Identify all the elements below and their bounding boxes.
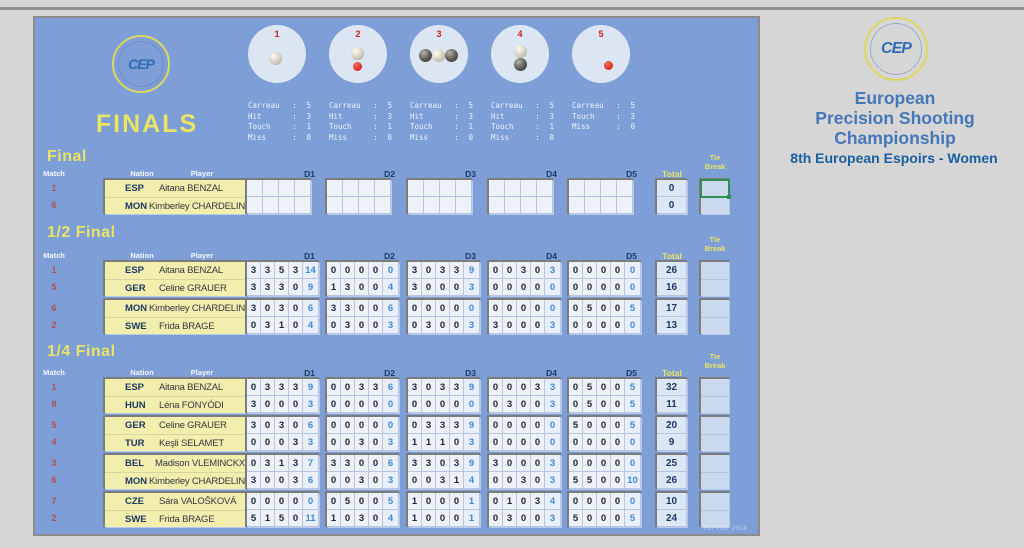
score-cell[interactable]: 0: [436, 396, 450, 413]
score-cell[interactable]: 0: [355, 455, 369, 472]
score-cell[interactable]: 3: [422, 455, 436, 472]
score-cell[interactable]: 0: [503, 417, 517, 434]
score-cell[interactable]: 0: [531, 279, 545, 296]
score-cell[interactable]: 0: [261, 300, 275, 317]
score-cell[interactable]: 1: [408, 434, 422, 451]
score-cell[interactable]: 0: [531, 455, 545, 472]
end-sum-cell[interactable]: 0: [464, 300, 480, 317]
score-cell[interactable]: 0: [355, 493, 369, 510]
score-cell[interactable]: 3: [355, 434, 369, 451]
end-sum-cell[interactable]: 11: [303, 510, 319, 527]
score-cell[interactable]: 3: [275, 379, 289, 396]
score-cell[interactable]: 5: [583, 396, 597, 413]
score-cell[interactable]: 3: [341, 279, 355, 296]
end-sum-cell[interactable]: 6: [303, 472, 319, 489]
score-cell[interactable]: 0: [369, 317, 383, 334]
score-cell[interactable]: 0: [531, 317, 545, 334]
score-cell[interactable]: 0: [597, 379, 611, 396]
score-cell[interactable]: 0: [503, 300, 517, 317]
score-cell[interactable]: 0: [489, 472, 503, 489]
score-cell[interactable]: 0: [569, 262, 583, 279]
score-cell[interactable]: 0: [327, 434, 341, 451]
score-cell[interactable]: 0: [489, 510, 503, 527]
score-cell[interactable]: 5: [569, 510, 583, 527]
score-cell[interactable]: 3: [369, 379, 383, 396]
score-cell[interactable]: [247, 197, 263, 214]
score-cell[interactable]: 0: [422, 262, 436, 279]
score-cell[interactable]: 0: [436, 510, 450, 527]
score-cell[interactable]: 0: [369, 493, 383, 510]
score-cell[interactable]: 0: [327, 317, 341, 334]
score-cell[interactable]: 0: [436, 493, 450, 510]
score-cell[interactable]: 0: [503, 279, 517, 296]
score-cell[interactable]: 0: [408, 317, 422, 334]
score-cell[interactable]: 5: [275, 510, 289, 527]
total-cell[interactable]: 10: [657, 493, 687, 510]
score-cell[interactable]: 0: [597, 493, 611, 510]
score-cell[interactable]: 0: [611, 434, 625, 451]
end-sum-cell[interactable]: 3: [383, 317, 399, 334]
score-cell[interactable]: [327, 197, 343, 214]
player-row[interactable]: TURKeşli SELAMET: [105, 434, 245, 451]
score-cell[interactable]: 0: [327, 493, 341, 510]
player-row[interactable]: CZESára VALOŠKOVÁ: [105, 493, 245, 510]
score-cell[interactable]: 3: [247, 417, 261, 434]
score-cell[interactable]: [521, 197, 537, 214]
score-cell[interactable]: [424, 197, 440, 214]
score-cell[interactable]: 0: [247, 434, 261, 451]
score-cell[interactable]: 5: [341, 493, 355, 510]
end-sum-cell[interactable]: 4: [303, 317, 319, 334]
score-cell[interactable]: 0: [261, 417, 275, 434]
end-sum-cell[interactable]: 9: [303, 279, 319, 296]
total-cell[interactable]: 17: [657, 300, 687, 317]
score-cell[interactable]: 0: [503, 317, 517, 334]
score-cell[interactable]: 3: [517, 472, 531, 489]
score-cell[interactable]: 3: [261, 379, 275, 396]
end-sum-cell[interactable]: 0: [625, 279, 641, 296]
end-sum-cell[interactable]: 3: [383, 434, 399, 451]
score-cell[interactable]: 0: [261, 493, 275, 510]
tie-break-cell[interactable]: [701, 317, 729, 334]
score-cell[interactable]: 0: [569, 279, 583, 296]
score-cell[interactable]: 0: [369, 455, 383, 472]
tie-break-cell[interactable]: [701, 262, 729, 279]
score-cell[interactable]: 0: [436, 279, 450, 296]
end-sum-cell[interactable]: 0: [383, 396, 399, 413]
score-cell[interactable]: 0: [569, 493, 583, 510]
score-cell[interactable]: 3: [247, 472, 261, 489]
score-cell[interactable]: 5: [583, 379, 597, 396]
score-cell[interactable]: 0: [261, 396, 275, 413]
score-cell[interactable]: 1: [327, 510, 341, 527]
score-cell[interactable]: 0: [327, 262, 341, 279]
score-cell[interactable]: 5: [247, 510, 261, 527]
score-cell[interactable]: 0: [611, 493, 625, 510]
score-cell[interactable]: 0: [341, 434, 355, 451]
end-sum-cell[interactable]: 0: [625, 493, 641, 510]
player-row[interactable]: ESPAitana BENZAL: [105, 262, 245, 279]
score-cell[interactable]: [440, 197, 456, 214]
score-cell[interactable]: 0: [517, 300, 531, 317]
score-cell[interactable]: [537, 180, 553, 197]
score-cell[interactable]: 0: [289, 317, 303, 334]
score-cell[interactable]: 0: [531, 300, 545, 317]
score-cell[interactable]: 0: [422, 396, 436, 413]
score-cell[interactable]: 0: [517, 396, 531, 413]
score-cell[interactable]: 0: [611, 396, 625, 413]
score-cell[interactable]: 0: [450, 300, 464, 317]
score-cell[interactable]: 3: [517, 262, 531, 279]
score-cell[interactable]: 0: [422, 279, 436, 296]
score-cell[interactable]: 3: [289, 472, 303, 489]
score-cell[interactable]: 3: [355, 510, 369, 527]
score-cell[interactable]: 3: [289, 379, 303, 396]
player-row[interactable]: GERCeline GRAUER: [105, 279, 245, 296]
end-sum-cell[interactable]: 10: [625, 472, 641, 489]
player-row[interactable]: SWEFrida BRAGE: [105, 317, 245, 334]
end-sum-cell[interactable]: 0: [625, 434, 641, 451]
score-cell[interactable]: 1: [408, 493, 422, 510]
score-cell[interactable]: 3: [436, 262, 450, 279]
player-row[interactable]: MONKimberley CHARDELIN: [105, 300, 245, 317]
score-cell[interactable]: 0: [289, 417, 303, 434]
end-sum-cell[interactable]: 9: [303, 379, 319, 396]
end-sum-cell[interactable]: 3: [464, 317, 480, 334]
score-cell[interactable]: 3: [247, 396, 261, 413]
score-cell[interactable]: 0: [517, 434, 531, 451]
score-cell[interactable]: 0: [408, 417, 422, 434]
end-sum-cell[interactable]: 3: [545, 262, 561, 279]
score-cell[interactable]: 1: [275, 455, 289, 472]
player-row[interactable]: ESPAitana BENZAL: [105, 379, 245, 396]
end-sum-cell[interactable]: 0: [545, 279, 561, 296]
score-cell[interactable]: [569, 197, 585, 214]
end-sum-cell[interactable]: 0: [464, 396, 480, 413]
score-cell[interactable]: 0: [611, 510, 625, 527]
end-sum-cell[interactable]: 5: [625, 417, 641, 434]
score-cell[interactable]: 3: [247, 262, 261, 279]
score-cell[interactable]: 0: [355, 396, 369, 413]
end-sum-cell[interactable]: 9: [464, 379, 480, 396]
end-sum-cell[interactable]: 3: [545, 379, 561, 396]
score-cell[interactable]: 0: [583, 417, 597, 434]
score-cell[interactable]: [247, 180, 263, 197]
score-cell[interactable]: 0: [341, 262, 355, 279]
end-sum-cell[interactable]: 3: [303, 396, 319, 413]
score-cell[interactable]: 3: [289, 262, 303, 279]
tie-break-cell[interactable]: [701, 197, 729, 214]
score-cell[interactable]: [295, 180, 311, 197]
score-cell[interactable]: 0: [503, 472, 517, 489]
score-cell[interactable]: 0: [247, 493, 261, 510]
score-cell[interactable]: 0: [327, 417, 341, 434]
score-cell[interactable]: 0: [597, 279, 611, 296]
score-cell[interactable]: 3: [247, 279, 261, 296]
score-cell[interactable]: 0: [289, 510, 303, 527]
score-cell[interactable]: 0: [369, 279, 383, 296]
score-cell[interactable]: 0: [327, 472, 341, 489]
end-sum-cell[interactable]: 5: [625, 300, 641, 317]
score-cell[interactable]: 0: [489, 262, 503, 279]
score-cell[interactable]: 5: [583, 472, 597, 489]
total-cell[interactable]: 13: [657, 317, 687, 334]
score-cell[interactable]: [617, 197, 633, 214]
score-cell[interactable]: 0: [341, 396, 355, 413]
score-cell[interactable]: 0: [450, 317, 464, 334]
score-cell[interactable]: 0: [583, 317, 597, 334]
score-cell[interactable]: 0: [422, 379, 436, 396]
end-sum-cell[interactable]: 0: [383, 262, 399, 279]
score-cell[interactable]: 0: [275, 472, 289, 489]
score-cell[interactable]: 0: [369, 396, 383, 413]
score-cell[interactable]: 0: [611, 472, 625, 489]
score-cell[interactable]: 3: [450, 262, 464, 279]
score-cell[interactable]: 3: [327, 300, 341, 317]
score-cell[interactable]: [569, 180, 585, 197]
score-cell[interactable]: [456, 197, 472, 214]
score-cell[interactable]: 0: [247, 455, 261, 472]
score-cell[interactable]: 1: [261, 510, 275, 527]
score-cell[interactable]: 3: [275, 279, 289, 296]
score-cell[interactable]: [617, 180, 633, 197]
score-cell[interactable]: 0: [247, 379, 261, 396]
score-cell[interactable]: 0: [597, 300, 611, 317]
tie-break-cell[interactable]: [701, 279, 729, 296]
score-cell[interactable]: 0: [422, 493, 436, 510]
score-cell[interactable]: [537, 197, 553, 214]
score-cell[interactable]: 0: [611, 279, 625, 296]
score-cell[interactable]: 1: [450, 472, 464, 489]
score-cell[interactable]: 0: [341, 472, 355, 489]
score-cell[interactable]: 0: [450, 396, 464, 413]
score-cell[interactable]: 3: [408, 262, 422, 279]
score-cell[interactable]: 0: [531, 434, 545, 451]
score-cell[interactable]: 0: [597, 262, 611, 279]
score-cell[interactable]: [408, 197, 424, 214]
score-cell[interactable]: [521, 180, 537, 197]
score-cell[interactable]: 0: [369, 300, 383, 317]
score-cell[interactable]: [505, 197, 521, 214]
score-cell[interactable]: 3: [450, 379, 464, 396]
score-cell[interactable]: 3: [261, 279, 275, 296]
score-cell[interactable]: 3: [261, 262, 275, 279]
score-cell[interactable]: 0: [275, 493, 289, 510]
score-cell[interactable]: 3: [408, 455, 422, 472]
score-cell[interactable]: 0: [517, 417, 531, 434]
score-cell[interactable]: 3: [503, 510, 517, 527]
score-cell[interactable]: 0: [327, 396, 341, 413]
score-cell[interactable]: 0: [503, 379, 517, 396]
end-sum-cell[interactable]: 7: [303, 455, 319, 472]
score-cell[interactable]: 0: [503, 434, 517, 451]
end-sum-cell[interactable]: 3: [545, 455, 561, 472]
score-cell[interactable]: [343, 197, 359, 214]
tie-break-cell[interactable]: [701, 396, 729, 413]
tie-break-cell[interactable]: [701, 493, 729, 510]
score-cell[interactable]: 0: [517, 379, 531, 396]
end-sum-cell[interactable]: 1: [464, 493, 480, 510]
score-cell[interactable]: 0: [583, 510, 597, 527]
score-cell[interactable]: [359, 197, 375, 214]
end-sum-cell[interactable]: 0: [625, 455, 641, 472]
tie-break-cell[interactable]: [701, 472, 729, 489]
score-cell[interactable]: 0: [611, 379, 625, 396]
score-cell[interactable]: 0: [327, 379, 341, 396]
end-sum-cell[interactable]: 9: [464, 262, 480, 279]
total-cell[interactable]: 26: [657, 472, 687, 489]
end-sum-cell[interactable]: 9: [464, 455, 480, 472]
score-cell[interactable]: 0: [289, 300, 303, 317]
score-cell[interactable]: 0: [503, 262, 517, 279]
end-sum-cell[interactable]: 5: [625, 396, 641, 413]
tie-break-cell[interactable]: [701, 434, 729, 451]
end-sum-cell[interactable]: 4: [545, 493, 561, 510]
score-cell[interactable]: 0: [450, 279, 464, 296]
score-cell[interactable]: 3: [341, 455, 355, 472]
score-cell[interactable]: 5: [569, 472, 583, 489]
tie-break-cell[interactable]: [701, 379, 729, 396]
score-cell[interactable]: [585, 197, 601, 214]
score-cell[interactable]: 0: [289, 279, 303, 296]
score-cell[interactable]: [601, 197, 617, 214]
player-row[interactable]: SWEFrida BRAGE: [105, 510, 245, 527]
score-cell[interactable]: 1: [327, 279, 341, 296]
score-cell[interactable]: 0: [611, 262, 625, 279]
score-cell[interactable]: 0: [341, 417, 355, 434]
end-sum-cell[interactable]: 6: [303, 417, 319, 434]
score-cell[interactable]: 0: [611, 417, 625, 434]
player-row[interactable]: HUNLéna FONYÓDI: [105, 396, 245, 413]
score-cell[interactable]: 0: [583, 279, 597, 296]
score-cell[interactable]: 0: [422, 510, 436, 527]
score-cell[interactable]: 0: [489, 279, 503, 296]
score-cell[interactable]: 3: [327, 455, 341, 472]
score-cell[interactable]: 0: [517, 279, 531, 296]
end-sum-cell[interactable]: 0: [625, 262, 641, 279]
score-cell[interactable]: 0: [531, 262, 545, 279]
score-cell[interactable]: 0: [597, 317, 611, 334]
score-cell[interactable]: 0: [611, 455, 625, 472]
score-cell[interactable]: 0: [261, 434, 275, 451]
score-cell[interactable]: 0: [611, 317, 625, 334]
total-cell[interactable]: 16: [657, 279, 687, 296]
score-cell[interactable]: 0: [341, 379, 355, 396]
score-cell[interactable]: [489, 180, 505, 197]
score-cell[interactable]: 3: [355, 472, 369, 489]
score-cell[interactable]: 3: [503, 396, 517, 413]
end-sum-cell[interactable]: 3: [545, 396, 561, 413]
end-sum-cell[interactable]: 14: [303, 262, 319, 279]
score-cell[interactable]: 3: [450, 417, 464, 434]
score-cell[interactable]: 0: [583, 434, 597, 451]
score-cell[interactable]: 3: [436, 417, 450, 434]
score-cell[interactable]: 0: [597, 434, 611, 451]
score-cell[interactable]: 0: [355, 262, 369, 279]
end-sum-cell[interactable]: 5: [625, 510, 641, 527]
score-cell[interactable]: 0: [569, 396, 583, 413]
score-cell[interactable]: 0: [569, 434, 583, 451]
score-cell[interactable]: 0: [436, 300, 450, 317]
end-sum-cell[interactable]: 0: [545, 300, 561, 317]
score-cell[interactable]: 0: [436, 317, 450, 334]
score-cell[interactable]: 0: [369, 510, 383, 527]
score-cell[interactable]: 0: [489, 417, 503, 434]
score-cell[interactable]: 0: [450, 434, 464, 451]
total-cell[interactable]: 26: [657, 262, 687, 279]
end-sum-cell[interactable]: 3: [545, 510, 561, 527]
score-cell[interactable]: [343, 180, 359, 197]
end-sum-cell[interactable]: 0: [625, 317, 641, 334]
score-cell[interactable]: 3: [436, 472, 450, 489]
end-sum-cell[interactable]: 6: [383, 455, 399, 472]
score-cell[interactable]: 0: [261, 472, 275, 489]
score-cell[interactable]: 0: [408, 300, 422, 317]
tie-break-cell[interactable]: [701, 417, 729, 434]
total-cell[interactable]: 11: [657, 396, 687, 413]
end-sum-cell[interactable]: 5: [383, 493, 399, 510]
total-cell[interactable]: 32: [657, 379, 687, 396]
score-cell[interactable]: 0: [489, 300, 503, 317]
score-cell[interactable]: [359, 180, 375, 197]
score-cell[interactable]: 3: [341, 300, 355, 317]
score-cell[interactable]: 0: [611, 300, 625, 317]
score-cell[interactable]: 0: [517, 493, 531, 510]
score-cell[interactable]: 0: [289, 493, 303, 510]
player-row[interactable]: ESPAitana BENZAL: [105, 180, 245, 197]
score-cell[interactable]: 0: [369, 417, 383, 434]
score-cell[interactable]: 0: [369, 472, 383, 489]
end-sum-cell[interactable]: 9: [464, 417, 480, 434]
score-cell[interactable]: 0: [531, 396, 545, 413]
end-sum-cell[interactable]: 3: [545, 317, 561, 334]
score-cell[interactable]: [327, 180, 343, 197]
score-cell[interactable]: 1: [422, 434, 436, 451]
score-cell[interactable]: [375, 180, 391, 197]
score-cell[interactable]: 0: [355, 279, 369, 296]
total-cell[interactable]: 20: [657, 417, 687, 434]
score-cell[interactable]: 3: [436, 379, 450, 396]
score-cell[interactable]: [375, 197, 391, 214]
end-sum-cell[interactable]: 6: [383, 379, 399, 396]
score-cell[interactable]: 3: [275, 300, 289, 317]
end-sum-cell[interactable]: 3: [464, 434, 480, 451]
score-cell[interactable]: 3: [531, 493, 545, 510]
player-row[interactable]: MONKimberley CHARDELIN: [105, 472, 245, 489]
end-sum-cell[interactable]: 1: [464, 510, 480, 527]
score-cell[interactable]: 0: [408, 472, 422, 489]
end-sum-cell[interactable]: 6: [303, 300, 319, 317]
score-cell[interactable]: 0: [289, 396, 303, 413]
score-cell[interactable]: 5: [569, 417, 583, 434]
score-cell[interactable]: 3: [355, 379, 369, 396]
score-cell[interactable]: 0: [583, 493, 597, 510]
score-cell[interactable]: [489, 197, 505, 214]
score-cell[interactable]: 0: [583, 262, 597, 279]
score-cell[interactable]: 0: [422, 300, 436, 317]
score-cell[interactable]: 0: [422, 472, 436, 489]
score-cell[interactable]: 0: [489, 434, 503, 451]
score-cell[interactable]: 0: [436, 455, 450, 472]
score-cell[interactable]: 5: [275, 262, 289, 279]
end-sum-cell[interactable]: 0: [545, 434, 561, 451]
score-cell[interactable]: 0: [275, 396, 289, 413]
score-cell[interactable]: 0: [355, 317, 369, 334]
tie-break-cell[interactable]: [701, 300, 729, 317]
end-sum-cell[interactable]: 5: [625, 379, 641, 396]
score-cell[interactable]: 3: [489, 317, 503, 334]
score-cell[interactable]: 3: [261, 455, 275, 472]
